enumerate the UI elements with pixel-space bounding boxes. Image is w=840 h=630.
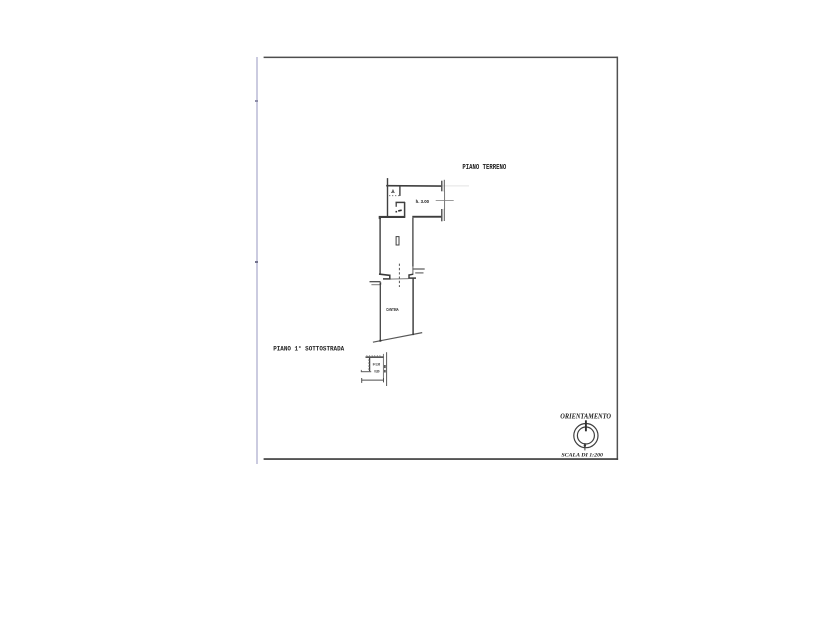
svg-text:ORIENTAMENTO: ORIENTAMENTO [560, 412, 611, 421]
svg-text:PIANO TERRENO: PIANO TERRENO [462, 164, 506, 172]
svg-text:PIANO 1° SOTTOSTRADA: PIANO 1° SOTTOSTRADA [273, 345, 345, 354]
svg-text:h. 3.00: h. 3.00 [416, 199, 430, 204]
svg-text:SCALA DI 1:200: SCALA DI 1:200 [561, 453, 603, 459]
svg-text:CANTINA: CANTINA [386, 307, 399, 313]
svg-text:0.80: 0.80 [374, 369, 379, 373]
svg-text:h=1.90: h=1.90 [373, 362, 380, 366]
